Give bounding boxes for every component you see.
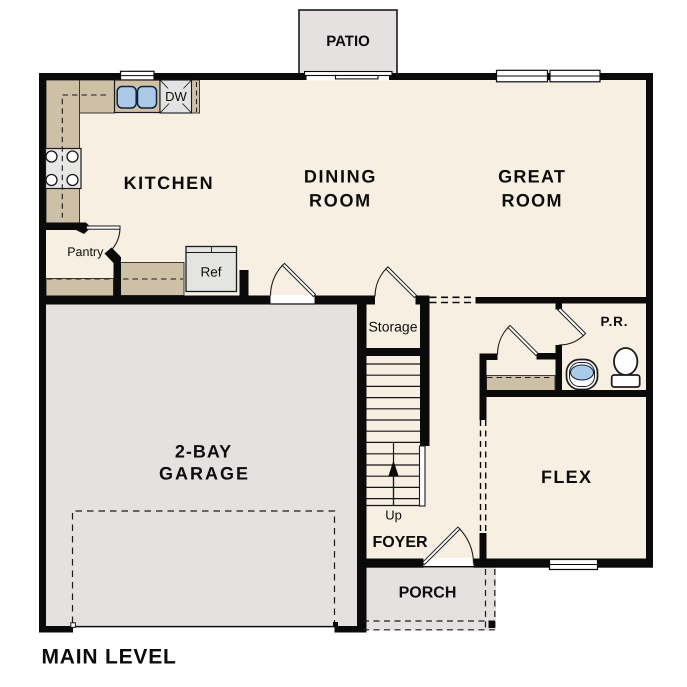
svg-text:Ref: Ref <box>200 265 221 280</box>
svg-text:DINING: DINING <box>304 167 377 187</box>
svg-text:GREAT: GREAT <box>498 167 566 187</box>
svg-text:Pantry: Pantry <box>67 245 104 259</box>
svg-text:DW: DW <box>165 89 187 104</box>
svg-text:P.R.: P.R. <box>601 314 629 329</box>
svg-text:FOYER: FOYER <box>372 534 428 551</box>
svg-text:PORCH: PORCH <box>399 585 457 602</box>
svg-text:2-BAY: 2-BAY <box>175 442 232 462</box>
svg-text:ROOM: ROOM <box>309 191 372 211</box>
svg-text:Storage: Storage <box>368 319 417 335</box>
svg-text:FLEX: FLEX <box>541 467 592 487</box>
svg-text:GARAGE: GARAGE <box>159 464 250 484</box>
svg-text:ROOM: ROOM <box>502 191 563 211</box>
svg-text:MAIN LEVEL: MAIN LEVEL <box>42 646 177 669</box>
svg-text:PATIO: PATIO <box>326 33 370 50</box>
svg-text:KITCHEN: KITCHEN <box>124 173 215 193</box>
svg-text:Up: Up <box>385 508 402 523</box>
